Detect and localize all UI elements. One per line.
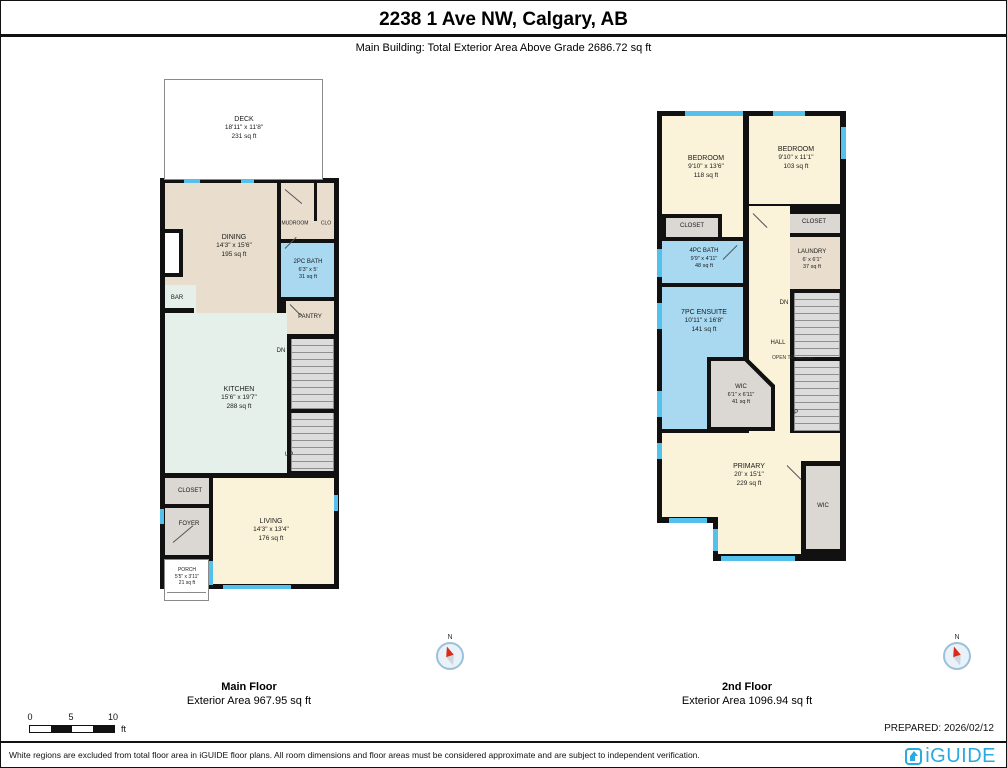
room-label-bar: BAR xyxy=(171,295,183,303)
window xyxy=(657,391,662,417)
wall xyxy=(287,473,334,478)
room-dims: 10'11" x 16'8" xyxy=(681,317,727,326)
stairs-up-label: UP xyxy=(285,452,293,460)
room-name: DINING xyxy=(216,233,252,242)
room-area: 141 sq ft xyxy=(681,326,727,335)
room-label-bedroom1: BEDROOM 9'10" x 13'6" 118 sq ft xyxy=(688,154,724,180)
room-name: BEDROOM xyxy=(778,145,814,154)
scale-bar-stripes xyxy=(29,725,115,733)
room-primary-area xyxy=(662,433,840,461)
room-area: 31 sq ft xyxy=(294,274,323,281)
room-label-laundry: LAUNDRY 6' x 6'1" 37 sq ft xyxy=(798,249,827,271)
scale-unit: ft xyxy=(121,724,126,734)
room-label-primary: PRIMARY 20' x 15'1" 229 sq ft xyxy=(733,462,765,488)
room-dims: 9'10" x 11'1" xyxy=(778,154,814,163)
room-area: 229 sq ft xyxy=(733,480,765,489)
room-name: CLOSET xyxy=(802,219,826,227)
footer-rule xyxy=(1,741,1007,743)
room-dims: 6'1" x 6'11" xyxy=(728,392,755,399)
room-label-kitchen: KITCHEN 15'6" x 19'7" 288 sq ft xyxy=(221,385,257,411)
room-name: HALL xyxy=(770,340,785,348)
room-name: DECK xyxy=(225,115,263,124)
room-area: 231 sq ft xyxy=(225,133,263,142)
room-label-foyer: FOYER xyxy=(179,521,200,529)
room-name: BEDROOM xyxy=(688,154,724,163)
window xyxy=(685,111,743,116)
second-floor-caption: 2nd Floor Exterior Area 1096.94 sq ft xyxy=(682,680,812,709)
porch-step-line xyxy=(167,592,206,593)
stairs-up-second xyxy=(794,361,840,431)
compass-needle xyxy=(950,645,964,666)
room-label-wic1: WIC 6'1" x 6'11" 41 sq ft xyxy=(728,384,755,406)
window xyxy=(721,556,795,561)
room-label-mudroom: MUDROOM xyxy=(282,221,309,228)
floor-name: 2nd Floor xyxy=(682,680,812,694)
direction-label: UP xyxy=(790,410,798,418)
page-title: 2238 1 Ave NW, Calgary, AB xyxy=(1,9,1006,31)
room-label-2pc-bath: 2PC BATH 6'3" x 5' 31 sq ft xyxy=(294,259,323,281)
floor-plan-page: 2238 1 Ave NW, Calgary, AB Main Building… xyxy=(0,0,1007,768)
header-rule xyxy=(1,34,1007,37)
window xyxy=(657,249,662,277)
wall xyxy=(160,473,281,478)
room-name: 2PC BATH xyxy=(294,259,323,267)
room-primary-area xyxy=(718,517,801,554)
window xyxy=(184,179,200,183)
window xyxy=(669,518,707,523)
room-area: 176 sq ft xyxy=(253,535,289,544)
fireplace-inner xyxy=(165,233,179,273)
room-name: FOYER xyxy=(179,521,200,529)
window xyxy=(160,509,164,524)
main-floor-caption: Main Floor Exterior Area 967.95 sq ft xyxy=(187,680,311,709)
room-dims: 18'11" x 11'8" xyxy=(225,124,263,133)
direction-label: DN xyxy=(780,300,789,308)
room-area: 41 sq ft xyxy=(728,399,755,406)
room-name: PANTRY xyxy=(298,314,322,322)
room-ensuite-area xyxy=(662,361,707,429)
room-dims: 14'3" x 13'4" xyxy=(253,526,289,535)
compass-icon xyxy=(436,642,464,670)
compass-north-label: N xyxy=(940,634,974,641)
room-name: KITCHEN xyxy=(221,385,257,394)
scale-tick: 0 xyxy=(27,712,32,722)
iguide-wordmark: iGUIDE xyxy=(925,745,996,768)
window xyxy=(209,561,213,585)
room-area: 118 sq ft xyxy=(688,172,724,181)
room-dims: 5'5" x 3'11" xyxy=(175,574,199,581)
room-label-closet1: CLOSET xyxy=(680,223,704,231)
room-name: LIVING xyxy=(253,517,289,526)
room-name: CLOSET xyxy=(680,223,704,231)
room-label-wic2: WIC xyxy=(817,503,829,511)
room-name: MUDROOM xyxy=(282,221,309,228)
window xyxy=(713,529,718,551)
stairs-up-label: UP xyxy=(790,410,798,418)
room-area: 195 sq ft xyxy=(216,251,252,260)
room-label-porch: PORCH 5'5" x 3'11" 21 sq ft xyxy=(175,567,199,587)
iguide-logo: iGUIDE xyxy=(905,745,996,768)
room-area: 21 sq ft xyxy=(175,580,199,587)
room-area: 288 sq ft xyxy=(221,403,257,412)
window xyxy=(241,179,254,183)
room-label-4pc-bath: 4PC BATH 9'9" x 4'11" 48 sq ft xyxy=(690,248,719,270)
stairs-down-main xyxy=(291,339,334,409)
wall xyxy=(165,504,209,508)
prepared-date: PREPARED: 2026/02/12 xyxy=(884,723,994,734)
window xyxy=(657,443,662,459)
room-primary-area xyxy=(662,461,801,517)
disclaimer-text: White regions are excluded from total fl… xyxy=(9,750,700,760)
room-label-clo: CLO xyxy=(321,221,331,228)
window xyxy=(223,585,291,589)
room-dims: 9'9" x 4'11" xyxy=(690,256,719,263)
page-subtitle: Main Building: Total Exterior Area Above… xyxy=(1,42,1006,54)
compass-second: N xyxy=(940,634,974,670)
fireplace-box xyxy=(161,229,183,277)
window xyxy=(773,111,805,116)
wall xyxy=(160,308,194,313)
room-label-dining: DINING 14'3" x 15'6" 195 sq ft xyxy=(216,233,252,259)
floor-area: Exterior Area 967.95 sq ft xyxy=(187,694,311,708)
room-name: WIC xyxy=(817,503,829,511)
stairs-up-main xyxy=(291,413,334,471)
room-name: PORCH xyxy=(175,567,199,574)
floor-area: Exterior Area 1096.94 sq ft xyxy=(682,694,812,708)
stairs-dn-label: DN xyxy=(780,300,789,308)
window xyxy=(841,127,846,159)
room-name: 7PC ENSUITE xyxy=(681,308,727,317)
room-name: F/P xyxy=(168,246,176,253)
stairs-down-second xyxy=(794,293,840,357)
room-name: CLO xyxy=(321,221,331,228)
room-name: PRIMARY xyxy=(733,462,765,471)
stairs-dn-label: DN xyxy=(277,348,286,356)
scale-tick: 10 xyxy=(108,712,118,722)
compass-needle xyxy=(443,645,457,666)
room-dims: 9'10" x 13'6" xyxy=(688,163,724,172)
room-name: 4PC BATH xyxy=(690,248,719,256)
room-area: 48 sq ft xyxy=(690,263,719,270)
room-label-living: LIVING 14'3" x 13'4" 176 sq ft xyxy=(253,517,289,543)
wall xyxy=(314,183,317,221)
compass-main: N xyxy=(433,634,467,670)
floor-name: Main Floor xyxy=(187,680,311,694)
room-dims: 14'3" x 15'6" xyxy=(216,242,252,251)
room-label-fp: F/P xyxy=(168,246,176,253)
room-name: LAUNDRY xyxy=(798,249,827,257)
room-area: 103 sq ft xyxy=(778,163,814,172)
room-label-closet: CLOSET xyxy=(178,488,202,496)
window xyxy=(334,495,338,511)
room-name: WIC xyxy=(728,384,755,392)
window xyxy=(657,303,662,329)
iguide-icon xyxy=(905,748,922,765)
room-dims: 6' x 6'1" xyxy=(798,257,827,264)
room-dims: 15'6" x 19'7" xyxy=(221,394,257,403)
room-name: BAR xyxy=(171,295,183,303)
room-name: CLOSET xyxy=(178,488,202,496)
compass-icon xyxy=(943,642,971,670)
direction-label: UP xyxy=(285,452,293,460)
bedroom1-door-nook xyxy=(722,214,743,237)
room-dims: 20' x 15'1" xyxy=(733,471,765,480)
scale-tick: 5 xyxy=(68,712,73,722)
room-foyer-area xyxy=(165,508,209,555)
room-label-hall: HALL xyxy=(770,340,785,348)
room-label-bedroom2: BEDROOM 9'10" x 11'1" 103 sq ft xyxy=(778,145,814,171)
room-label-ensuite: 7PC ENSUITE 10'11" x 16'8" 141 sq ft xyxy=(681,308,727,334)
room-area: 37 sq ft xyxy=(798,264,827,271)
compass-north-label: N xyxy=(433,634,467,641)
direction-label: DN xyxy=(277,348,286,356)
room-label-pantry: PANTRY xyxy=(298,314,322,322)
room-dims: 6'3" x 5' xyxy=(294,267,323,274)
room-label-deck: DECK 18'11" x 11'8" 231 sq ft xyxy=(225,115,263,141)
room-label-closet2: CLOSET xyxy=(802,219,826,227)
